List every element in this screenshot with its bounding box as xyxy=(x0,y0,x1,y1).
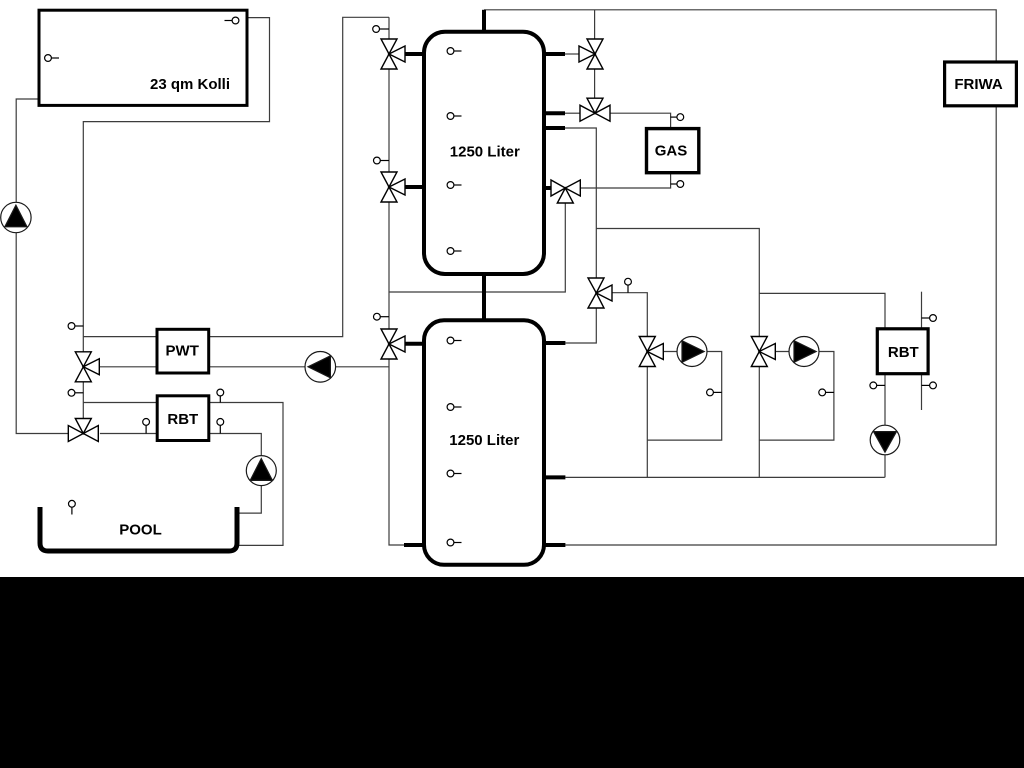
svg-text:RBT: RBT xyxy=(888,344,919,361)
svg-text:23 qm Kolli: 23 qm Kolli xyxy=(150,76,230,93)
svg-text:1250 Liter: 1250 Liter xyxy=(450,143,520,160)
svg-text:GAS: GAS xyxy=(655,143,688,160)
svg-text:PWT: PWT xyxy=(166,342,199,359)
svg-text:POOL: POOL xyxy=(119,522,162,539)
svg-text:1250 Liter: 1250 Liter xyxy=(449,432,519,449)
svg-text:RBT: RBT xyxy=(167,411,198,428)
svg-text:FRIWA: FRIWA xyxy=(954,76,1002,93)
